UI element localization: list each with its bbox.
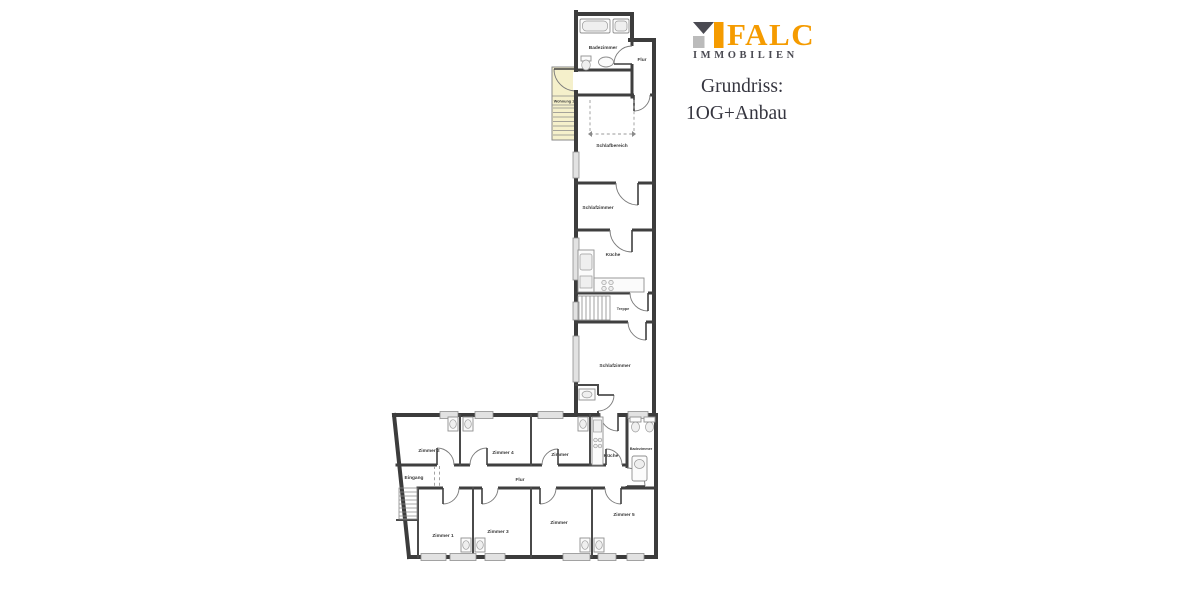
toilet-tank: [630, 417, 641, 422]
og-stair-annex: [552, 67, 576, 140]
room-label-schlafbereich: Schlafbereich: [596, 143, 628, 149]
room-label-zimmer3: Zimmer 3: [487, 529, 509, 535]
og-treppe-steps: [578, 296, 610, 320]
screenshot-root: Badezimmer Flur Wohnung 1 Schlafbereich …: [0, 0, 1200, 600]
stove-burner: [598, 444, 602, 448]
room-label-zimmer4: Zimmer 4: [492, 450, 514, 456]
stove-burner: [602, 286, 606, 290]
room-label-zimmer2: Zimmer 2: [418, 448, 440, 454]
room-label-zimmer5: Zimmer 5: [613, 512, 635, 518]
stove-burner: [594, 438, 598, 442]
logo-wordmark: FALC: [727, 17, 815, 53]
kitchen-sink-anbau: [594, 420, 602, 432]
anbau-left-slant-wall: [394, 415, 409, 557]
logo-roof-triangle: [693, 22, 714, 34]
room-label-kueche-anbau: Küche: [604, 453, 619, 459]
room-label-wohnung: Wohnung 1: [554, 100, 575, 104]
washbasin: [599, 57, 614, 67]
kitchen-unit: [580, 276, 592, 288]
room-label-zimmer1: Zimmer 1: [432, 533, 454, 539]
room-label-badezimmer-anbau: Badezimmer: [630, 447, 653, 451]
stove-burner: [598, 438, 602, 442]
room-label-badezimmer-og: Badezimmer: [589, 45, 618, 51]
stove-burner: [609, 286, 613, 290]
room-label-schlafzimmer-gross: Schlafzimmer: [599, 363, 630, 369]
logo-gray-square: [693, 36, 705, 48]
plan-title-line1: Grundriss:: [701, 76, 783, 98]
og-roofline-dashed: [588, 100, 636, 137]
eingang-dashed-opening: [435, 466, 440, 487]
kitchen-counter-bottom: [594, 278, 644, 292]
room-label-flur-og: Flur: [637, 57, 646, 63]
toilet-tank: [644, 417, 655, 422]
toilet-bowl: [582, 60, 591, 70]
kitchen-sink: [580, 254, 592, 270]
room-label-treppe: Treppe: [617, 307, 629, 311]
room-label-eingang: Eingang: [405, 475, 424, 481]
stove-burner: [609, 280, 613, 284]
anbau-fixtures: [448, 417, 655, 552]
stove-burner: [594, 444, 598, 448]
room-label-zimmer-unten: Zimmer: [550, 520, 567, 526]
room-label-schlafzimmer-og: Schlafzimmer: [582, 205, 613, 211]
og-wing-walls: [576, 12, 654, 415]
room-label-zimmer-oben: Zimmer: [551, 452, 568, 458]
room-label-flur-anbau: Flur: [515, 477, 524, 483]
plan-title-line2: 1OG+Anbau: [686, 103, 787, 125]
logo-subtext: IMMOBILIEN: [693, 50, 798, 61]
logo-orange-bar: [714, 22, 724, 48]
room-label-kueche-og: Küche: [606, 252, 621, 258]
floorplan-svg: Badezimmer Flur Wohnung 1 Schlafbereich …: [0, 0, 1200, 600]
stove-burner: [602, 280, 606, 284]
